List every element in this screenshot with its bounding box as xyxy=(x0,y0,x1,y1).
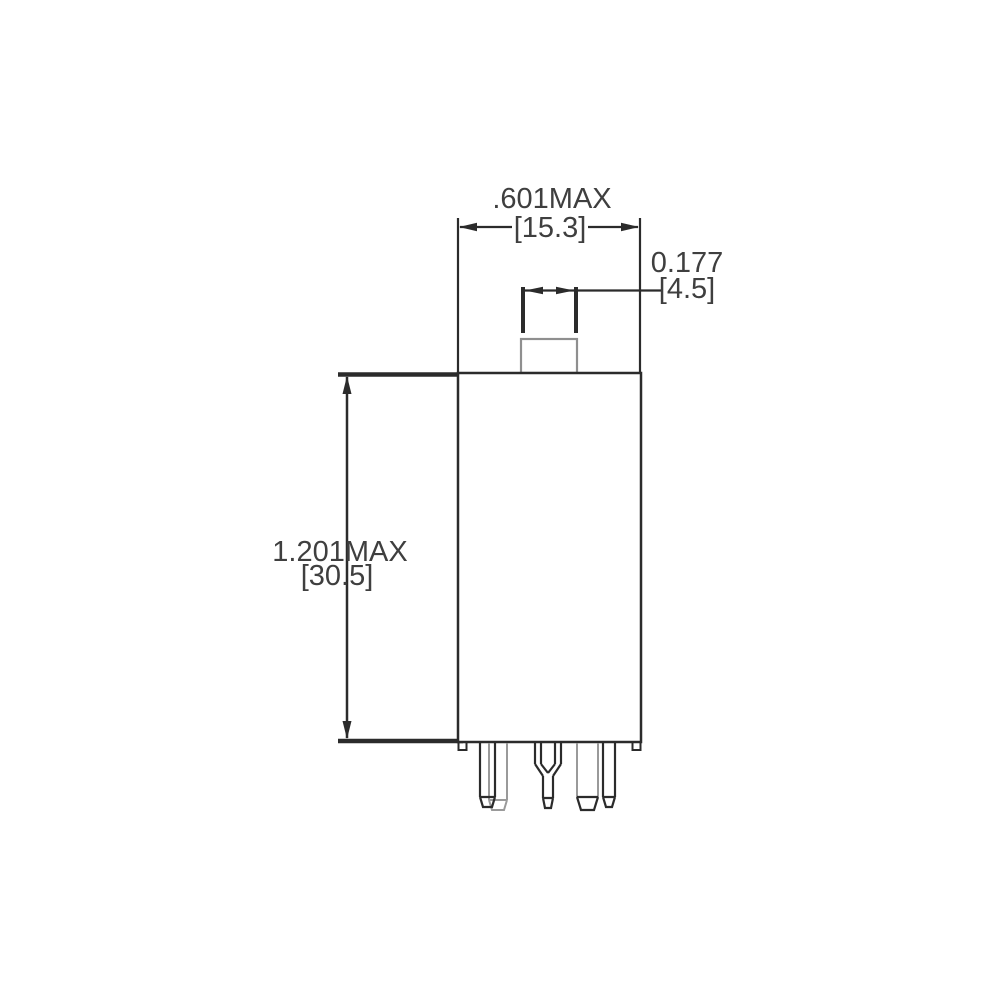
pin-right-narrow xyxy=(603,743,615,807)
width-dim-label-imperial: .601MAX xyxy=(492,183,611,215)
pin-right-wide xyxy=(577,743,598,810)
pin-left-front xyxy=(480,743,495,807)
relay-right-foot xyxy=(633,743,641,750)
width-dim-arrow-left-icon xyxy=(459,223,477,231)
tab-dim-label-metric: [4.5] xyxy=(659,273,715,305)
height-dim-label-metric: [30.5] xyxy=(301,560,374,592)
tab-dim-arrow-right-icon xyxy=(556,287,574,295)
height-dimension: 1.201MAX [30.5] xyxy=(272,375,463,742)
height-dim-arrow-up-icon xyxy=(343,376,352,394)
relay-left-foot xyxy=(459,743,467,750)
width-dim-label-metric: [15.3] xyxy=(514,212,587,244)
relay-pins xyxy=(480,743,615,810)
pin-left-rear xyxy=(489,743,507,810)
relay-housing xyxy=(458,373,641,742)
pin-middle xyxy=(535,743,561,808)
tab-dimension: 0.177 [4.5] xyxy=(523,247,723,333)
relay-dimension-drawing: 1.201MAX [30.5] .601MAX [15.3] xyxy=(0,0,1000,1000)
width-dim-arrow-right-icon xyxy=(621,223,639,231)
relay-body xyxy=(458,339,641,750)
technical-drawing-canvas: 1.201MAX [30.5] .601MAX [15.3] xyxy=(0,0,1000,1000)
relay-top-tab xyxy=(521,339,577,373)
tab-dim-arrow-left-icon xyxy=(525,287,543,295)
height-dim-arrow-down-icon xyxy=(343,721,352,739)
